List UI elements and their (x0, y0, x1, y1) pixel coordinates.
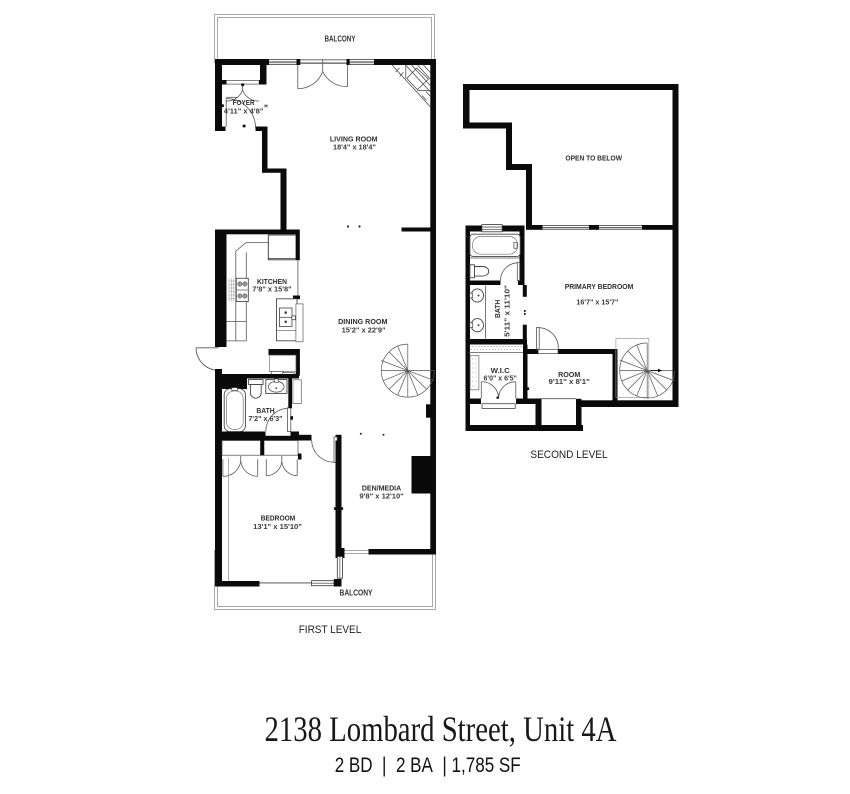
svg-text:PRIMARY BEDROOM: PRIMARY BEDROOM (565, 282, 634, 291)
svg-text:BALCONY: BALCONY (325, 35, 357, 44)
svg-text:BATH: BATH (493, 300, 502, 318)
svg-text:18'4" x 18'4": 18'4" x 18'4" (333, 143, 376, 152)
svg-text:7'2" x 6'3": 7'2" x 6'3" (248, 414, 282, 423)
svg-text:2138 Lombard Street, Unit 4A: 2138 Lombard Street, Unit 4A (265, 709, 617, 749)
svg-text:15'2" x 22'9": 15'2" x 22'9" (342, 325, 386, 334)
svg-text:H: H (264, 104, 267, 109)
svg-text:6'0" x 6'5": 6'0" x 6'5" (484, 374, 517, 383)
svg-text:13'1" x 15'10": 13'1" x 15'10" (253, 522, 302, 531)
svg-text:9'8" x 12'10": 9'8" x 12'10" (359, 492, 403, 501)
svg-text:5'11" x 11'10": 5'11" x 11'10" (503, 285, 512, 337)
svg-text:4'11" x 4'8": 4'11" x 4'8" (224, 106, 264, 115)
svg-text:OPEN TO BELOW: OPEN TO BELOW (565, 153, 622, 162)
svg-text:16'7" x 15'7": 16'7" x 15'7" (576, 298, 618, 307)
svg-text:SECOND LEVEL: SECOND LEVEL (530, 449, 607, 461)
svg-text:9'11" x 8'1": 9'11" x 8'1" (549, 377, 590, 386)
svg-text:BALCONY: BALCONY (340, 588, 374, 597)
svg-text:2 BD | 2 BA | 1,785 SF: 2 BD | 2 BA | 1,785 SF (335, 754, 521, 777)
svg-text:7'8" x 15'8": 7'8" x 15'8" (252, 285, 291, 294)
svg-text:FIRST LEVEL: FIRST LEVEL (299, 624, 362, 636)
